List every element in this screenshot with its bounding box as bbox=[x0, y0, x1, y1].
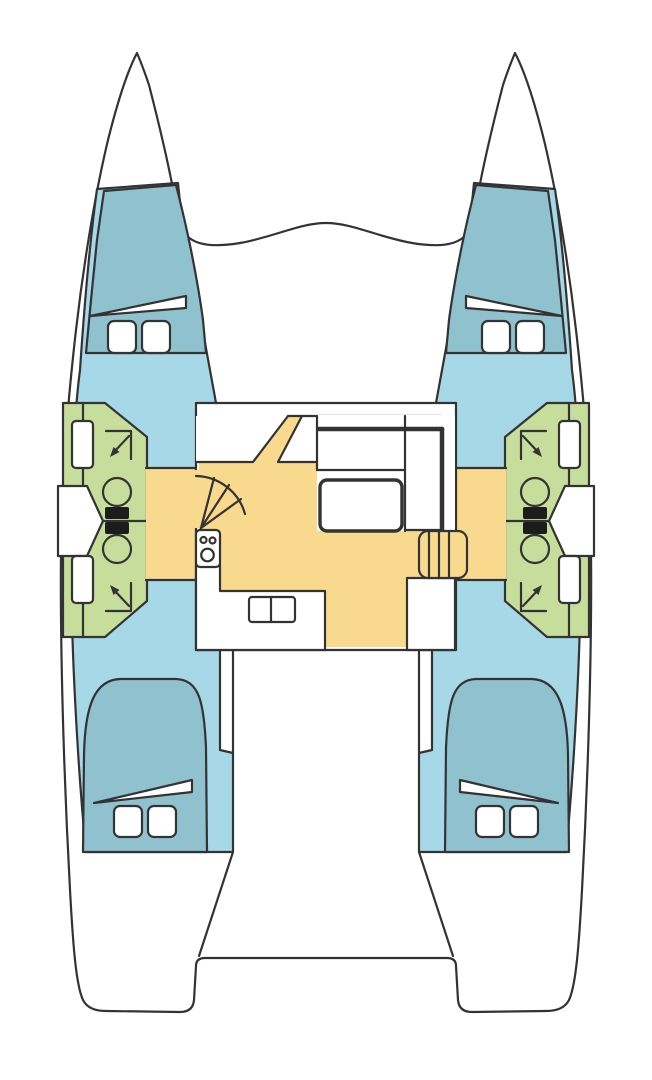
aft-galley-module bbox=[407, 578, 455, 650]
plan-root bbox=[58, 53, 594, 1012]
floorplan-canvas bbox=[0, 0, 652, 1080]
starboard-steps bbox=[419, 531, 467, 578]
salon bbox=[193, 403, 467, 650]
stair-opening bbox=[193, 470, 200, 528]
catamaran-floorplan bbox=[0, 0, 652, 1080]
dinette-table bbox=[320, 480, 402, 531]
